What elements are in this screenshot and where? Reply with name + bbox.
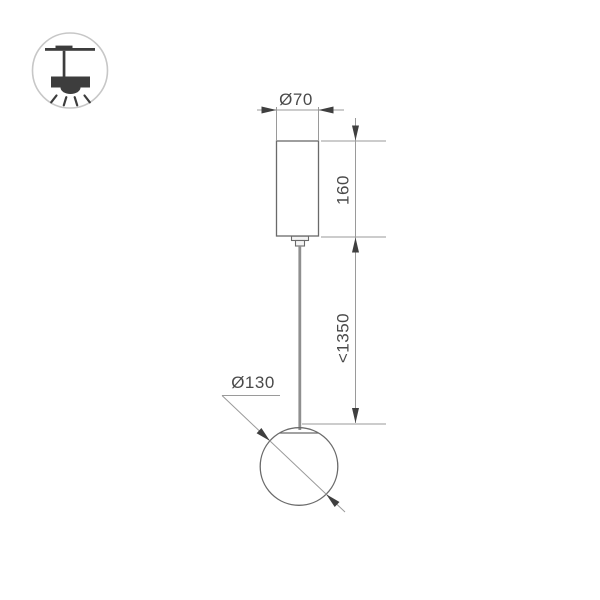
arrowhead [319, 107, 334, 114]
pendant-ceiling-light-icon [33, 33, 108, 108]
canopy-diameter-label: Ø70 [279, 90, 313, 109]
canopy-height-dimension: 160 [321, 118, 386, 423]
arrowhead [352, 126, 359, 141]
arrowhead [352, 238, 359, 253]
canopy-height-label: 160 [333, 175, 352, 205]
icon-stem [63, 51, 66, 77]
technical-drawing-canvas: Ø70 160 <1350 Ø130 [0, 0, 600, 600]
icon-mount-plate [56, 46, 73, 49]
sphere-diameter-dimension: Ø130 [222, 373, 345, 512]
icon-circle-border [33, 33, 108, 108]
ceiling-connector-stem [296, 241, 305, 247]
pendant-lamp-drawing [260, 141, 338, 505]
ceiling-connector-flange [292, 236, 309, 240]
drawing-svg: Ø70 160 <1350 Ø130 [0, 0, 600, 600]
arrowhead [262, 107, 277, 114]
suspension-length-dimension: <1350 [302, 313, 386, 424]
suspension-length-label: <1350 [333, 313, 352, 363]
sphere-diameter-label: Ø130 [231, 373, 275, 392]
canopy-diameter-dimension: Ø70 [257, 90, 344, 140]
arrowhead [352, 408, 359, 423]
icon-lamp-shade [51, 77, 90, 88]
icon-ceiling-bar [45, 48, 95, 51]
canopy-cylinder [277, 141, 319, 236]
